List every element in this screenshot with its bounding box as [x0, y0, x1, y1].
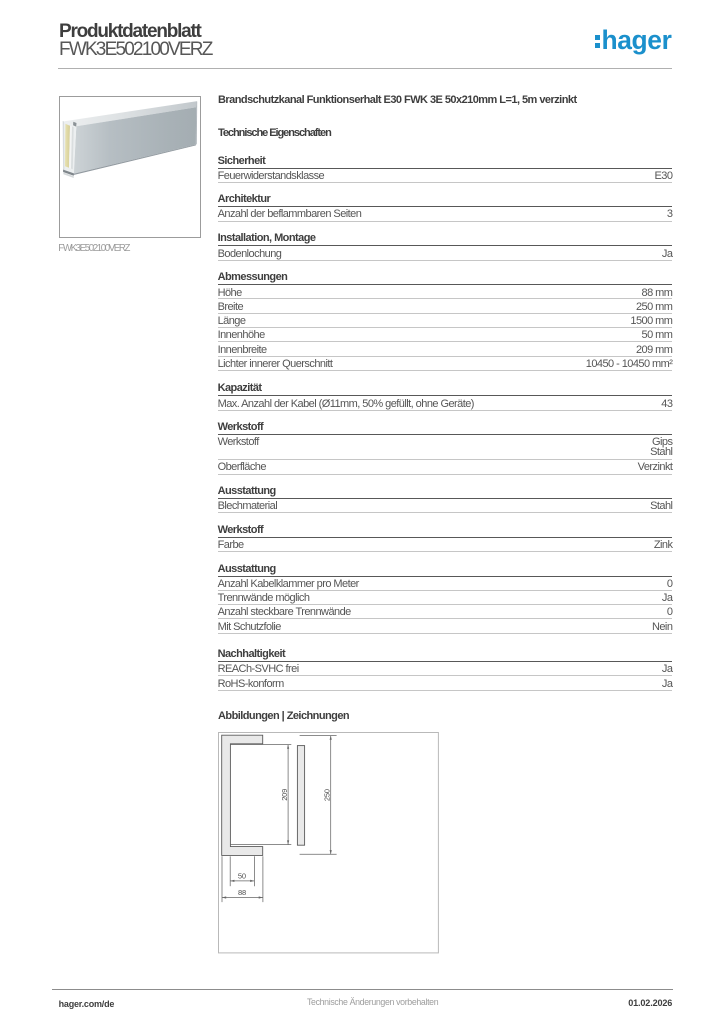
- svg-text:209: 209: [280, 789, 289, 801]
- svg-text:250: 250: [322, 789, 331, 801]
- svg-text:88: 88: [238, 888, 246, 897]
- svg-text:50: 50: [238, 871, 246, 880]
